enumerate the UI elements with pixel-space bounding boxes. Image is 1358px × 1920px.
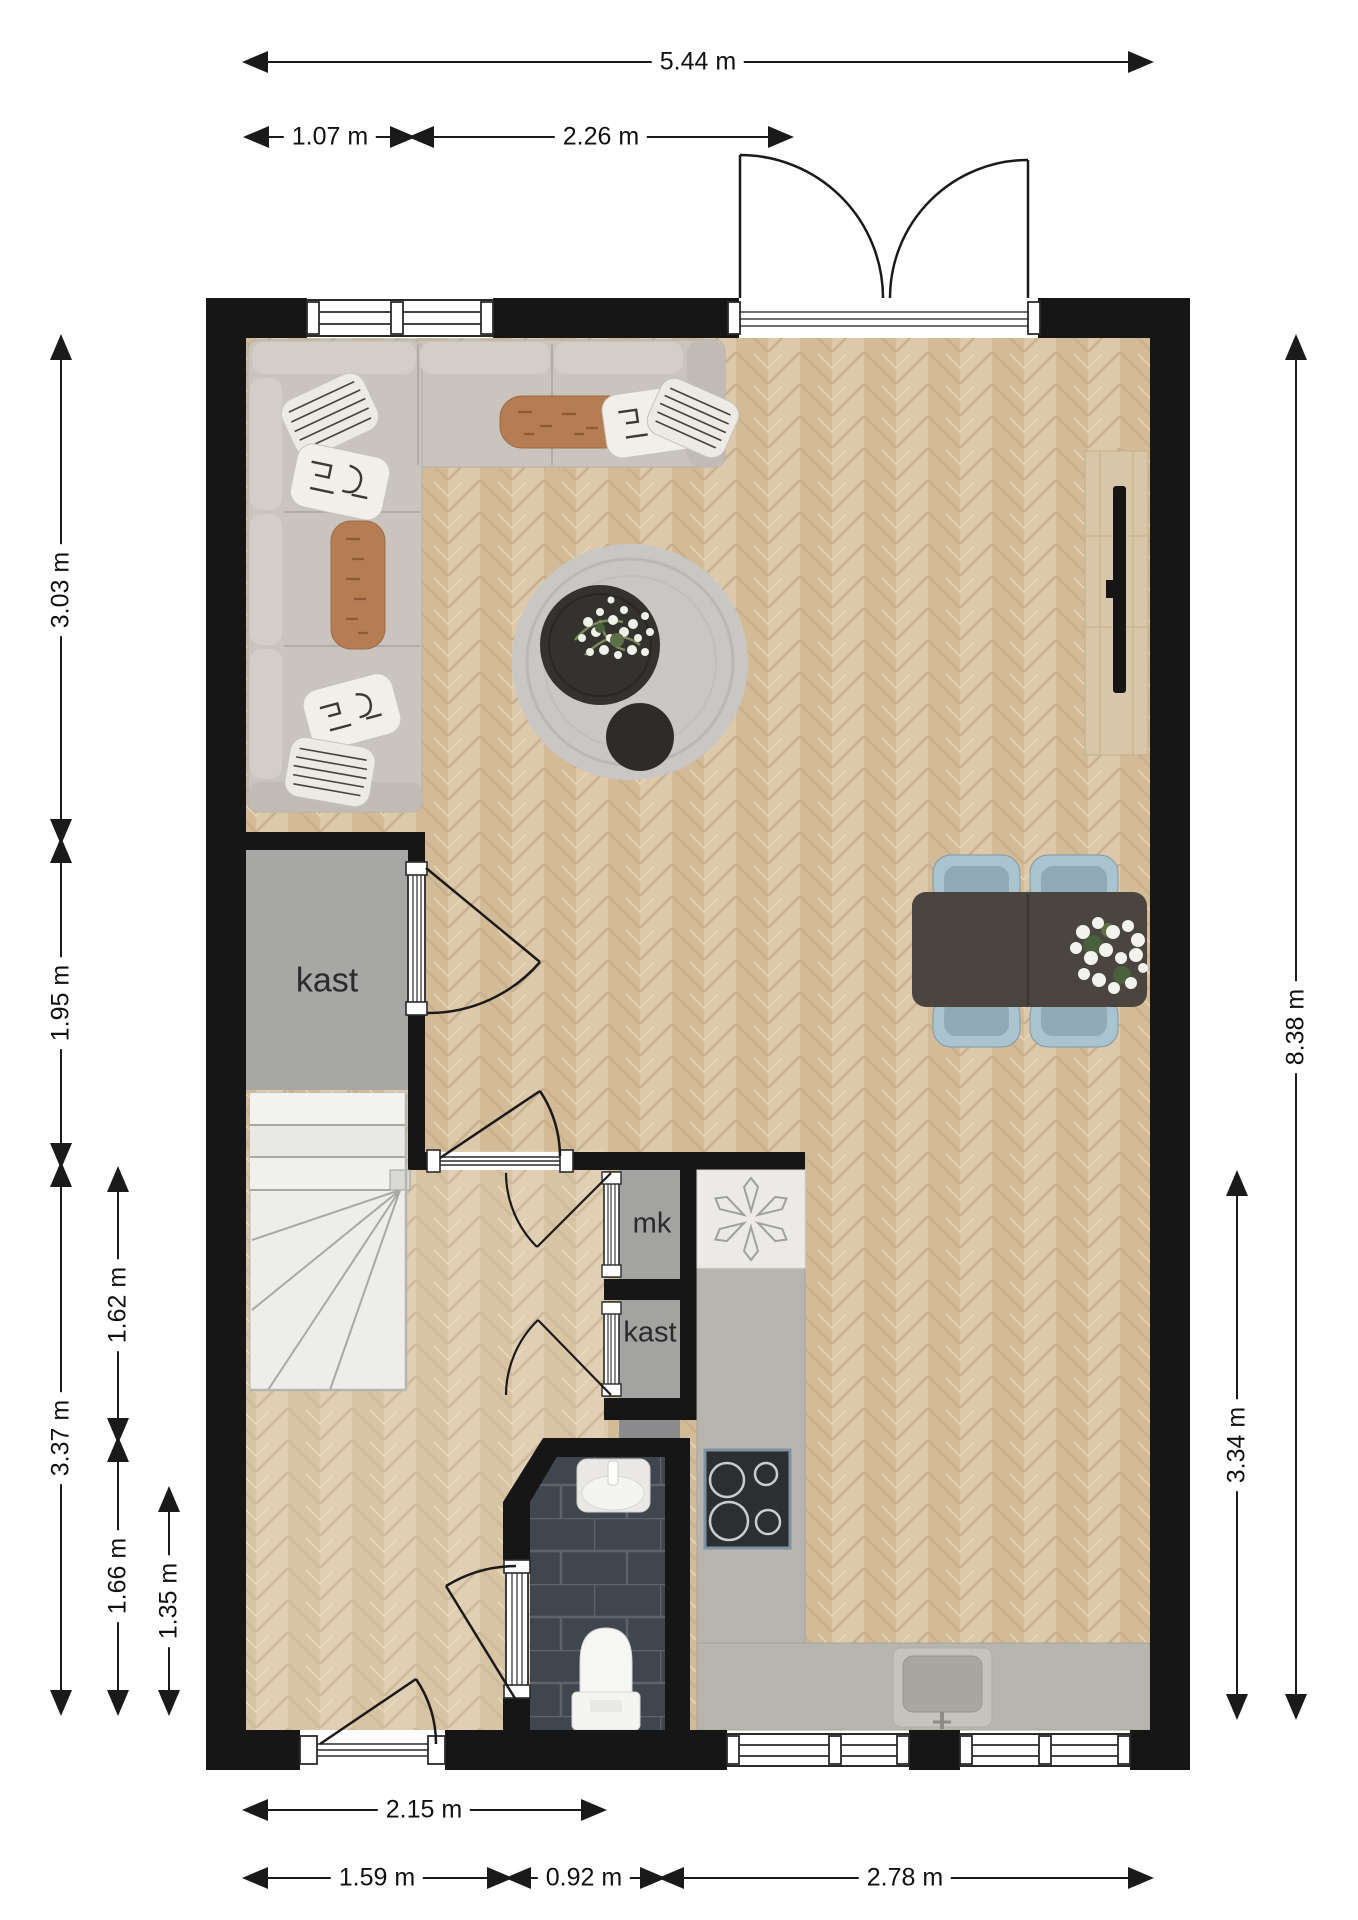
dimension-label-left-seg3: 3.37 m [46,1392,76,1484]
floor-plan-page: 5.44 m 1.07 m 2.26 m 3.03 m 1.95 m 3.37 … [0,0,1358,1920]
double-entry-door [728,155,1040,334]
dimension-label-left-inner1: 1.62 m [103,1259,133,1351]
kitchen-sink [893,1648,992,1729]
staircase [250,1093,410,1390]
dimension-label-left-seg1: 3.03 m [46,544,76,636]
tv-cabinet [1085,451,1148,755]
dimension-label-left-seg2: 1.95 m [46,957,76,1049]
boiler [697,1170,805,1268]
dimension-label-left-inner2: 1.66 m [103,1530,133,1622]
pillow-lumbar-rust [331,521,385,649]
dimension-label-bottom-hall: 2.15 m [378,1795,470,1825]
dimension-label-top-seg2: 2.26 m [555,122,647,152]
window-bottom-left [727,1734,909,1766]
floor-plan-canvas [0,0,1358,1920]
dimension-label-width-total: 5.44 m [652,47,744,77]
room-label-closet-small: kast [623,1317,676,1350]
cooktop [705,1450,790,1548]
window-top [307,300,493,336]
room-label-closet-large: kast [296,962,358,1001]
dimension-label-height-total: 8.38 m [1281,981,1311,1073]
dimension-label-bottom-seg3: 2.78 m [859,1863,951,1893]
wash-basin [577,1459,650,1512]
bathroom [503,1438,690,1730]
dimension-label-top-seg1: 1.07 m [284,122,376,152]
dimension-label-bottom-seg1: 1.59 m [331,1863,423,1893]
room-label-meter-cupboard: mk [633,1208,672,1241]
window-bottom-right [960,1734,1130,1766]
dimension-label-left-inner3: 1.35 m [154,1555,184,1647]
dimension-label-bottom-seg2: 0.92 m [538,1863,630,1893]
dimension-label-right-seg: 3.34 m [1222,1399,1252,1491]
dining-set [912,855,1148,1047]
